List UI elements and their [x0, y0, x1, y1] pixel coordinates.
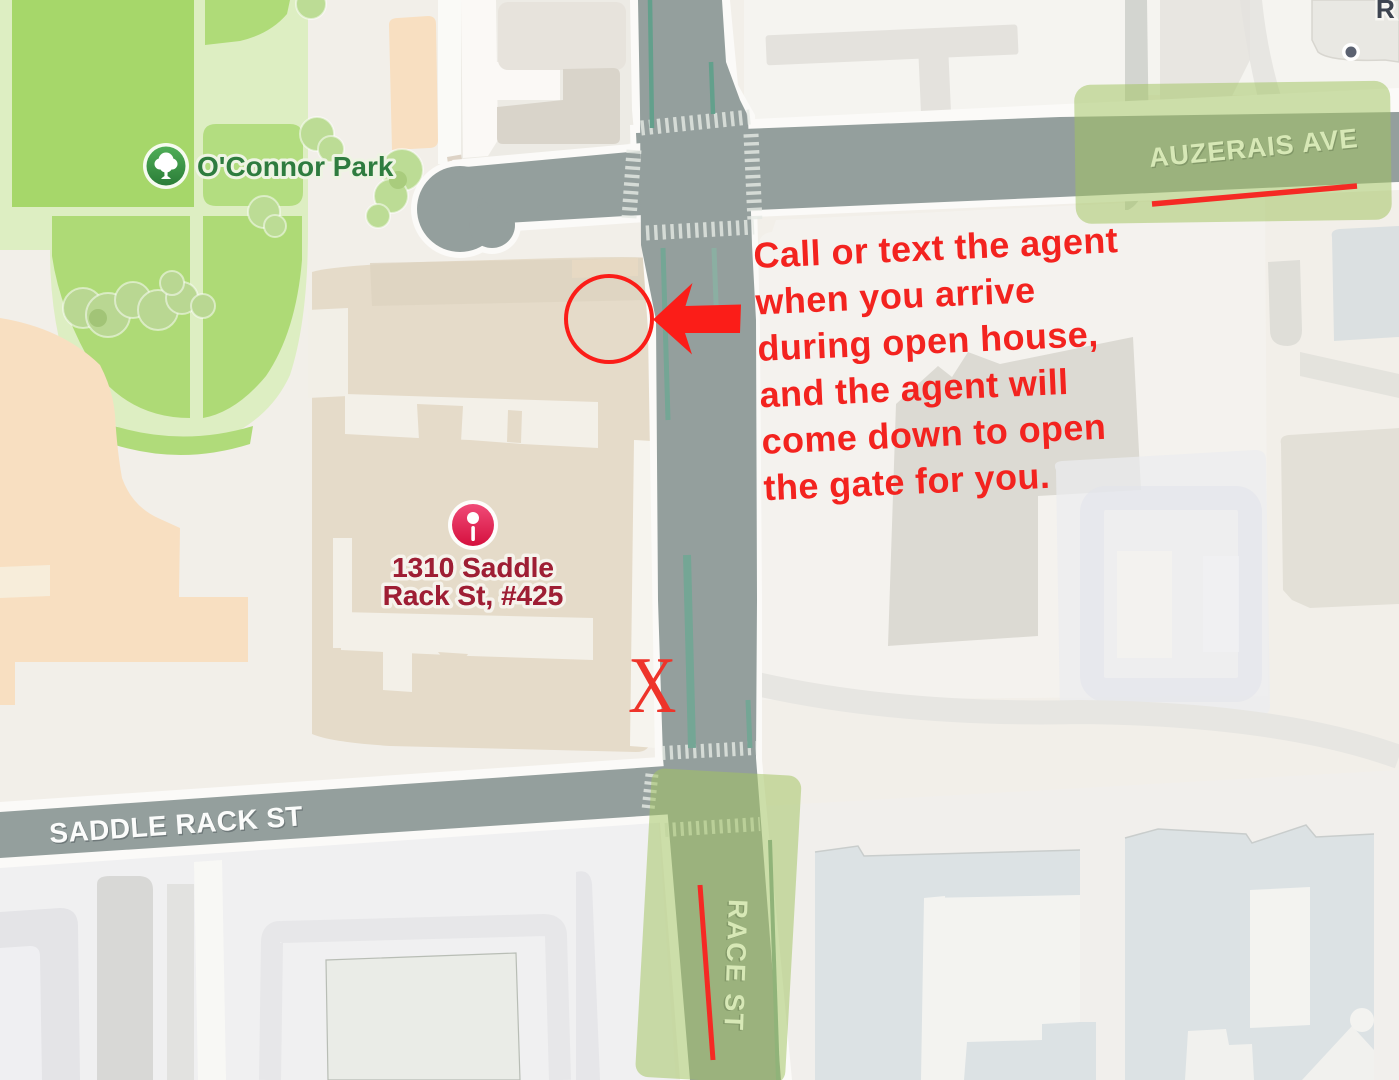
svg-text:O'Connor Park: O'Connor Park [197, 151, 394, 182]
svg-text:Rack St, #425: Rack St, #425 [383, 580, 564, 611]
svg-text:R: R [1376, 0, 1395, 24]
svg-text:X: X [628, 641, 677, 730]
svg-text:RACE ST: RACE ST [718, 899, 753, 1032]
svg-text:1310 Saddle: 1310 Saddle [392, 552, 554, 583]
